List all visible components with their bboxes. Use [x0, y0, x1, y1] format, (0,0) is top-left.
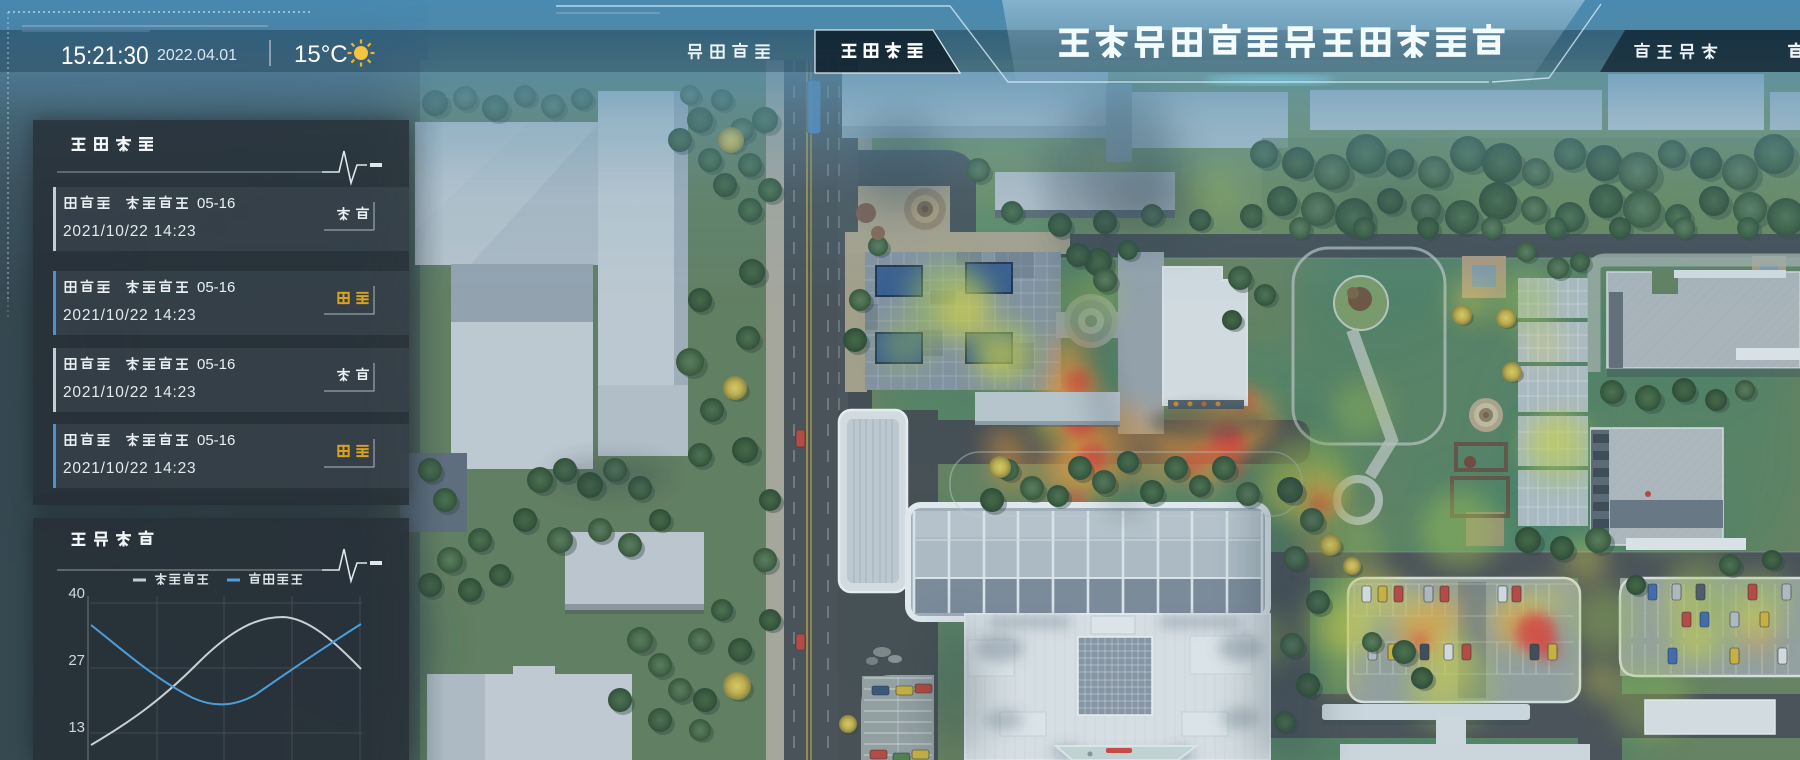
svg-text:2021/10/22 14:23: 2021/10/22 14:23: [63, 460, 196, 477]
svg-text:2021/10/22 14:23: 2021/10/22 14:23: [63, 307, 196, 324]
svg-text:05-16: 05-16: [197, 195, 235, 212]
svg-text:40: 40: [68, 585, 85, 602]
svg-text:2021/10/22 14:23: 2021/10/22 14:23: [63, 223, 196, 240]
svg-text:13: 13: [68, 719, 85, 736]
svg-text:27: 27: [68, 652, 85, 669]
svg-text:05-16: 05-16: [197, 279, 235, 296]
svg-text:05-16: 05-16: [197, 432, 235, 449]
svg-text:05-16: 05-16: [197, 356, 235, 373]
svg-text:2021/10/22 14:23: 2021/10/22 14:23: [63, 384, 196, 401]
